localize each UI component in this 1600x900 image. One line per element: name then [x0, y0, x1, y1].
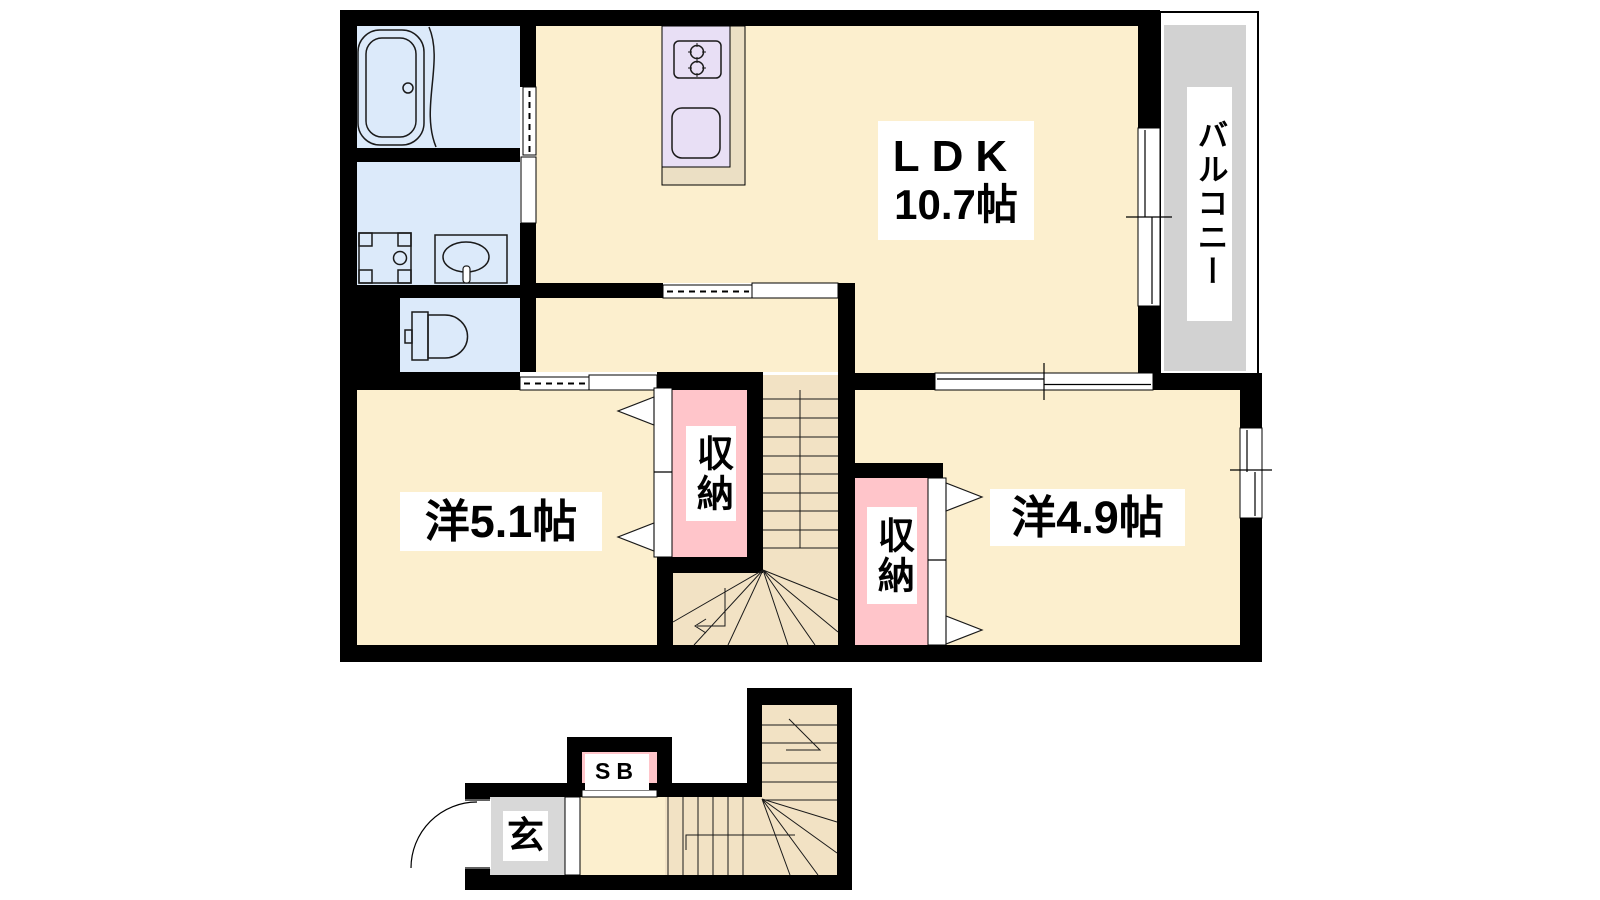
stairs-2f-turn: [673, 573, 763, 645]
floor-plan-page: LDK 10.7帖 洋5.1帖 洋4.9帖 収納 収納 バルコニー 玄 SB: [0, 0, 1600, 900]
sliding-door-hall-ldk: [663, 283, 838, 298]
hall-floor: [536, 298, 838, 372]
ldk-floor: [536, 26, 1138, 283]
floor-plan-drawing: [0, 0, 1600, 900]
bathroom-floor: [357, 26, 520, 148]
entry-hall-floor: [580, 797, 665, 875]
ldk-room-size: 10.7帖: [894, 182, 1018, 228]
genkan-step: [565, 797, 580, 875]
west-room-49-label: 洋4.9帖: [990, 489, 1185, 546]
entrance-label: 玄: [503, 811, 548, 861]
sliding-door-washroom: [521, 87, 536, 223]
shoe-box-door: [582, 790, 657, 797]
closet-lower-label: 収納: [867, 507, 917, 604]
toilet-floor: [400, 298, 520, 372]
ldk-label: LDK 10.7帖: [878, 121, 1034, 240]
entry-door: [411, 799, 491, 869]
ldk-room-name: LDK: [893, 133, 1019, 181]
washroom-floor: [357, 162, 520, 285]
kitchen-counter: [662, 26, 745, 185]
ldk-floor-lower: [855, 283, 1138, 373]
sliding-door-hall-west51: [520, 375, 657, 390]
closet-upper-label: 収納: [686, 426, 736, 521]
west-room-51-label: 洋5.1帖: [400, 492, 602, 551]
shoe-box-label: SB: [585, 754, 649, 790]
balcony-label: バルコニー: [1187, 87, 1232, 321]
